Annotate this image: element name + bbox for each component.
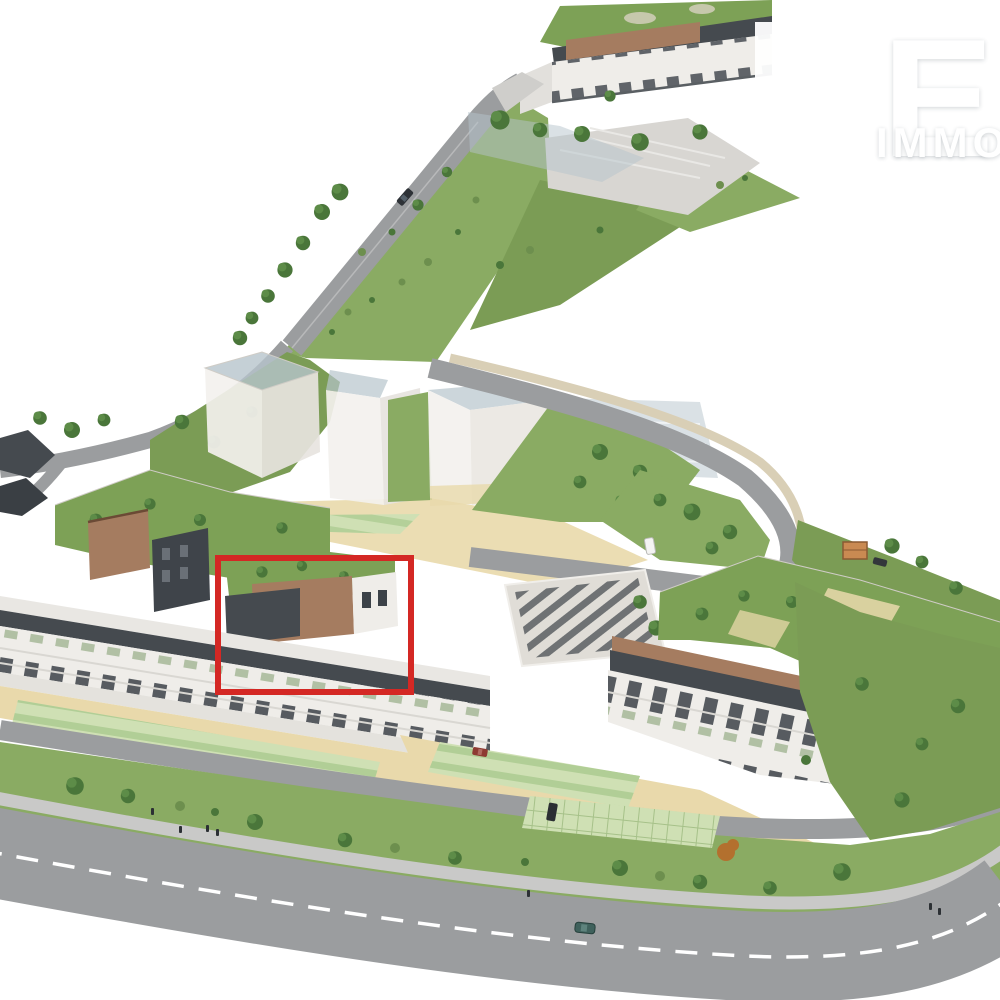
garden-hut	[843, 542, 867, 559]
site-plan-svg	[0, 0, 1000, 1000]
highlighted-building	[225, 552, 398, 645]
aerial-render: EG IMMOBI	[0, 0, 1000, 1000]
car-main-road	[575, 922, 596, 934]
